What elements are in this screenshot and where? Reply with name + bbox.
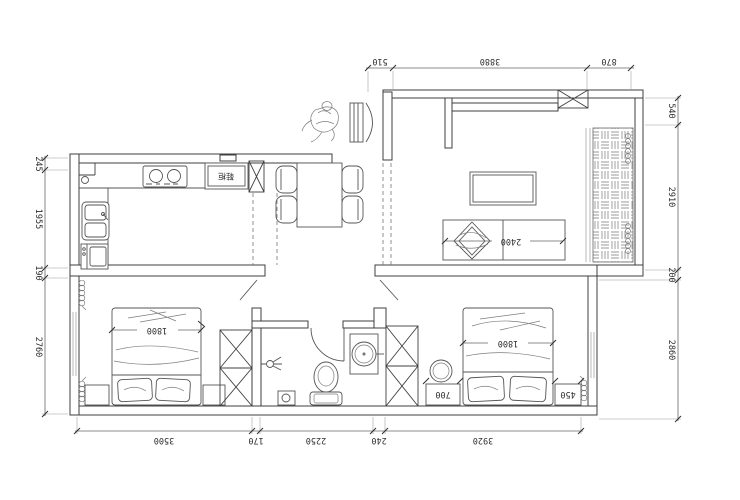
basin-icon xyxy=(350,334,384,374)
kitchen: 鞋柜 xyxy=(79,163,248,269)
bedside-width-label: 450 xyxy=(560,389,575,399)
door-leaf xyxy=(240,280,257,300)
dim-bottom-3: 2250 xyxy=(306,435,326,445)
left-bedroom: 1800 xyxy=(85,280,257,405)
dim-left-1: 245 xyxy=(33,156,43,171)
dim-bottom-2: 170 xyxy=(248,435,263,445)
person-sketch-icon xyxy=(302,102,338,143)
cabinet-label: 鞋柜 xyxy=(218,172,234,182)
dim-right-3: 200 xyxy=(666,267,676,282)
wardrobe-right xyxy=(386,326,418,406)
bed-icon xyxy=(112,308,201,405)
dim-top-2: 3880 xyxy=(480,56,500,66)
dim-left-2: 1955 xyxy=(33,209,43,229)
dim-left-3: 190 xyxy=(33,265,43,280)
entry-door-icon xyxy=(350,103,373,142)
dimension-chain-bottom: 3500 170 2250 240 3920 xyxy=(74,417,584,445)
washing-machine-icon xyxy=(81,244,108,269)
dimension-chain-left: 245 1955 190 2760 xyxy=(33,155,68,417)
nightstand-width-label: 700 xyxy=(435,389,450,399)
dim-right-4: 2860 xyxy=(666,340,676,360)
bed-icon xyxy=(463,308,553,405)
dim-right-2: 2910 xyxy=(666,187,676,207)
floor-plan-drawing: 鞋柜 2400 xyxy=(0,0,740,500)
left-bed-width-label: 1800 xyxy=(147,325,167,335)
dim-bottom-4: 240 xyxy=(371,435,386,445)
right-bed-width-label: 1800 xyxy=(498,338,518,348)
bedside-450: 450 xyxy=(552,378,584,405)
balcony xyxy=(586,128,633,262)
dining-area xyxy=(253,163,391,265)
nightstand xyxy=(85,385,109,405)
door-leaf xyxy=(380,280,398,300)
toilet-icon xyxy=(310,362,342,405)
bathroom xyxy=(261,328,384,405)
kitchen-sink-icon xyxy=(82,202,109,240)
right-bedroom: 1800 700 450 xyxy=(380,280,584,405)
shoe-cabinet: 鞋柜 xyxy=(205,163,248,189)
stove-icon xyxy=(143,166,187,187)
column-x-kitchen xyxy=(249,161,264,192)
dimension-chain-top: 510 3880 870 xyxy=(365,56,634,92)
living-room: 2400 xyxy=(442,172,566,260)
nightstand xyxy=(203,385,225,405)
dim-top-3: 870 xyxy=(601,56,616,66)
dim-bottom-5: 3920 xyxy=(473,435,493,445)
coffee-table-icon xyxy=(470,172,536,205)
shower-head-icon xyxy=(261,357,282,370)
floor-plan-canvas: 鞋柜 2400 xyxy=(0,0,740,500)
floor-drain-icon xyxy=(278,391,295,405)
dim-right-1: 540 xyxy=(666,103,676,118)
door-swing-arc xyxy=(311,328,344,361)
sofa-width-label: 2400 xyxy=(501,236,521,246)
dim-top-1: 510 xyxy=(372,56,387,66)
entry xyxy=(302,102,373,143)
dim-bottom-1: 3500 xyxy=(154,435,174,445)
dim-left-4: 2760 xyxy=(33,337,43,357)
